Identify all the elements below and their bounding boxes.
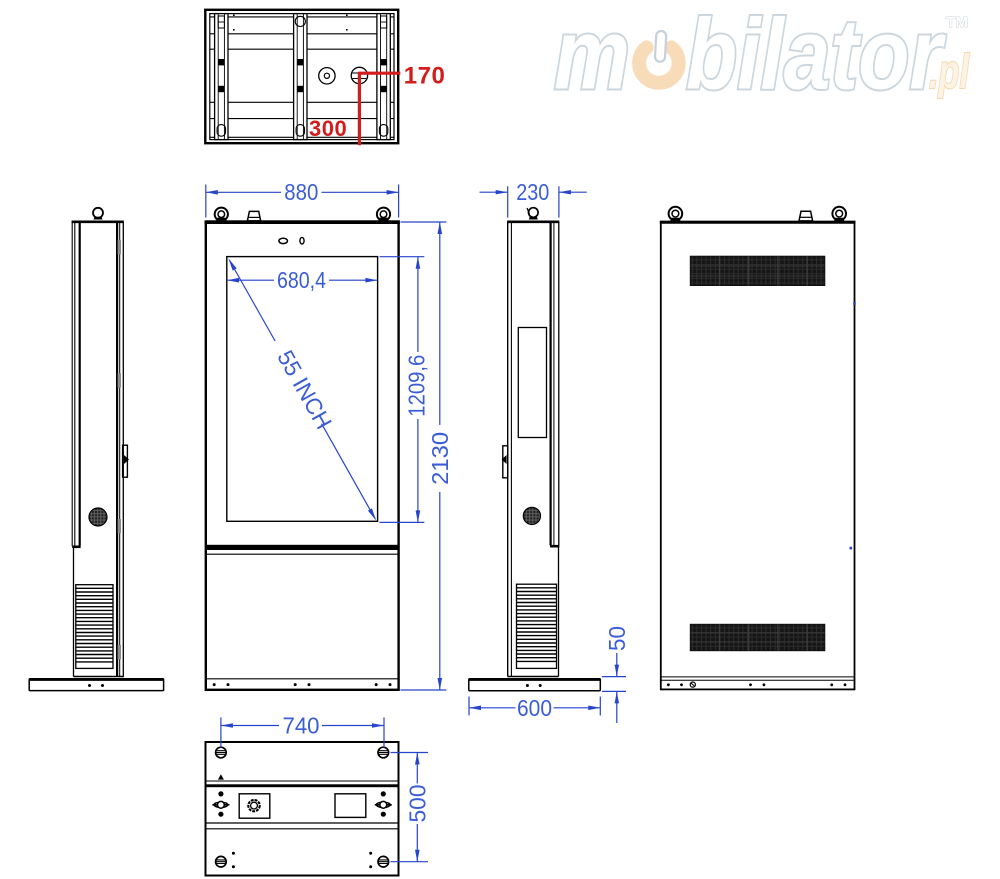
svg-text:500: 500 bbox=[404, 785, 430, 823]
svg-text:880: 880 bbox=[284, 179, 318, 205]
svg-text:230: 230 bbox=[516, 179, 549, 205]
svg-text:680,4: 680,4 bbox=[277, 267, 326, 293]
svg-text:m: m bbox=[554, 0, 630, 111]
svg-text:bilator: bilator bbox=[686, 0, 946, 111]
svg-text:1209,6: 1209,6 bbox=[404, 355, 430, 417]
svg-text:50: 50 bbox=[604, 626, 630, 651]
svg-text:170: 170 bbox=[404, 63, 446, 90]
svg-text:740: 740 bbox=[283, 712, 320, 738]
svg-text:TM: TM bbox=[946, 14, 968, 31]
svg-text:600: 600 bbox=[517, 695, 552, 721]
svg-text:55 INCH: 55 INCH bbox=[272, 346, 337, 434]
svg-text:.pl: .pl bbox=[929, 46, 970, 99]
svg-text:300: 300 bbox=[309, 116, 347, 141]
svg-text:2130: 2130 bbox=[427, 432, 453, 485]
